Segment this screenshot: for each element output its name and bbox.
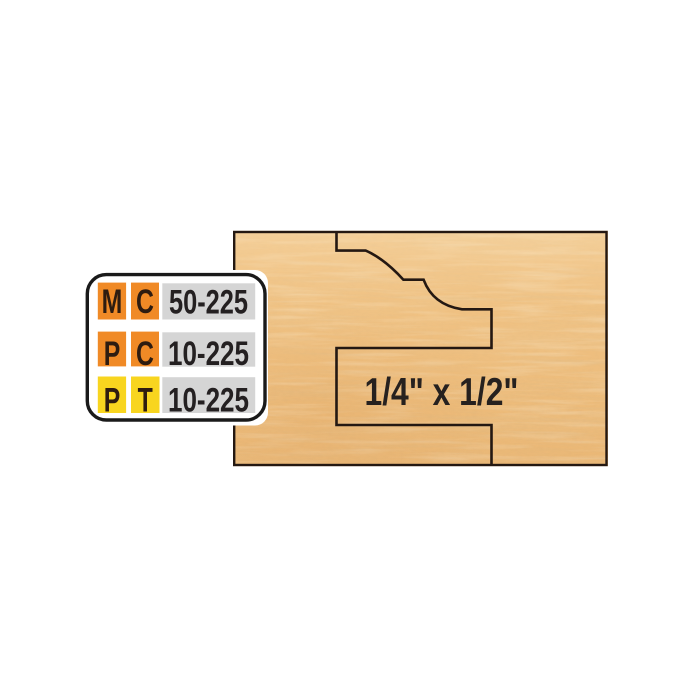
svg-text:50-225: 50-225 [169,284,248,322]
svg-text:C: C [136,283,154,321]
svg-text:M: M [102,283,123,321]
svg-text:P: P [104,382,121,420]
svg-text:10-225: 10-225 [168,382,249,420]
svg-text:1/4" x 1/2": 1/4" x 1/2" [365,371,519,414]
svg-text:P: P [104,335,121,373]
svg-text:T: T [138,382,153,420]
svg-text:C: C [136,335,154,373]
svg-text:10-225: 10-225 [168,335,249,373]
